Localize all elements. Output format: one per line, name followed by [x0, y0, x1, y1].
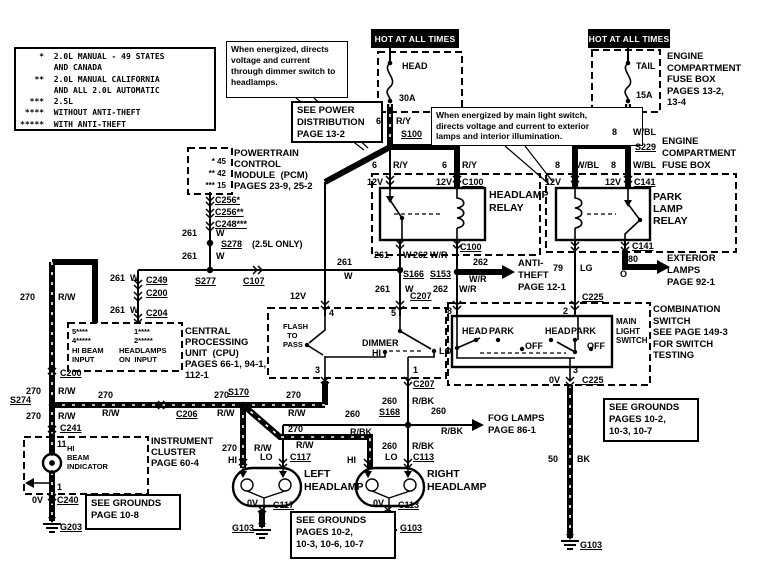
label-tail: TAIL — [636, 62, 655, 71]
label-261: 261 — [110, 274, 125, 283]
label-8: 8 — [612, 128, 617, 137]
wire-270-main-run — [52, 381, 325, 405]
see-grounds-bottom: SEE GROUNDS PAGES 10-2, 10-3, 10-6, 10-7 — [290, 511, 396, 559]
label-261: 261 — [375, 285, 390, 294]
label-off: OFF — [525, 342, 543, 351]
label-w: W — [344, 272, 353, 281]
label-lg: LG — [580, 264, 593, 273]
label-262: 262 — [413, 251, 428, 260]
label-r-bk: R/BK — [412, 397, 434, 406]
instrument-cluster-label: INSTRUMENT CLUSTER PAGE 60-4 — [151, 436, 213, 469]
label-w-bl: W/BL — [633, 161, 656, 170]
note-dimmer: When energized, directs voltage and curr… — [226, 41, 348, 98]
see-grounds-right: SEE GROUNDS PAGES 10-2, 10-3, 10-7 — [603, 398, 699, 442]
label-261: 261 — [337, 258, 352, 267]
label-260: 260 — [382, 442, 397, 451]
label-261: 261 — [374, 251, 389, 260]
label-260: 260 — [382, 397, 397, 406]
label-s166: S166 — [403, 270, 424, 279]
label-r-bk: R/BK — [412, 442, 434, 451]
label-c100: C100 — [460, 243, 482, 252]
label-260: 260 — [431, 407, 446, 416]
engine-fusebox-top-label: ENGINE COMPARTMENT FUSE BOX PAGES 13-2, … — [667, 51, 741, 109]
label-0v: 0V — [32, 496, 43, 505]
label-g103: G103 — [400, 524, 422, 533]
label-s153: S153 — [430, 270, 451, 279]
flash-to-pass-label: FLASH TO PASS — [283, 322, 308, 349]
label-c206: C206 — [176, 410, 198, 419]
label-s100: S100 — [401, 130, 422, 139]
label-w: W — [130, 274, 139, 283]
label-r-w: R/W — [296, 441, 314, 450]
label-r-w: R/W — [58, 412, 76, 421]
label-w-r: W/R — [469, 275, 487, 284]
label-262: 262 — [473, 258, 488, 267]
label-c141: C141 — [632, 242, 654, 251]
label-c113: C113 — [398, 501, 419, 510]
label-bk: BK — [577, 455, 590, 464]
label-c225: C225 — [582, 293, 604, 302]
label-head: HEAD — [545, 327, 571, 336]
label-270: 270 — [26, 412, 41, 421]
label-head: HEAD — [402, 62, 428, 71]
label-3: 3 — [315, 366, 320, 375]
label-270: 270 — [20, 293, 35, 302]
label-c225: C225 — [582, 376, 604, 385]
label-s168: S168 — [379, 408, 400, 417]
label-c107: C107 — [243, 277, 265, 286]
wiring-diagram: HOT AT ALL TIMESHOT AT ALL TIMES * 2.0L … — [0, 0, 775, 571]
cpu-pin-hibeam-label: HI BEAM INPUT — [72, 346, 104, 364]
label-c207: C207 — [413, 380, 435, 389]
label-6: 6 — [442, 161, 447, 170]
label-50: 50 — [548, 455, 558, 464]
anti-theft-arrow — [502, 265, 515, 279]
label-c117: C117 — [290, 453, 311, 462]
label-270: 270 — [286, 391, 301, 400]
label-12v: 12V — [605, 178, 621, 187]
hot-at-all-times-right: HOT AT ALL TIMES — [588, 29, 670, 48]
label-r-y: R/Y — [462, 161, 477, 170]
label-hi: HI — [372, 349, 381, 358]
label-c207: C207 — [410, 292, 432, 301]
label-park: PARK — [571, 327, 596, 336]
label-r-bk: R/BK — [441, 427, 463, 436]
label-s278: S278 — [221, 240, 242, 249]
label-6: 6 — [372, 161, 377, 170]
label-r-y: R/Y — [396, 117, 411, 126]
label-12v: 12V — [545, 178, 561, 187]
label-c113: C113 — [413, 453, 434, 462]
label-261: 261 — [182, 252, 197, 261]
label-w-r: W/R — [459, 285, 477, 294]
cpu-label: CENTRAL PROCESSING UNIT (CPU) PAGES 66-1… — [185, 326, 266, 381]
park-lamp-relay-label: PARK LAMP RELAY — [653, 191, 688, 227]
fog-lamps-arrow — [472, 419, 484, 431]
head-fuse-element — [387, 63, 392, 100]
label-w-bl: W/BL — [633, 128, 656, 137]
see-grounds-cluster: SEE GROUNDS PAGE 10-8 — [85, 494, 181, 530]
label-lo: LO — [385, 453, 398, 462]
label-lo: LO — [439, 347, 452, 356]
label-c240: C240 — [57, 496, 79, 505]
label-s229: S229 — [635, 143, 656, 152]
label-c241: C241 — [60, 424, 82, 433]
label-g203: G203 — [60, 523, 82, 532]
label-w-bl: W/BL — [576, 161, 599, 170]
combination-switch-label: COMBINATION SWITCH SEE PAGE 149-3 FOR SW… — [653, 304, 728, 362]
label-c141: C141 — [634, 178, 656, 187]
label-2: 2 — [563, 307, 568, 316]
label-5: 5 — [391, 309, 396, 318]
label-1: 1 — [413, 366, 418, 375]
label-s170: S170 — [228, 388, 249, 397]
label-r-w: R/W — [58, 293, 76, 302]
label-r-w: R/W — [102, 409, 120, 418]
label-270: 270 — [98, 391, 113, 400]
label-r-w: R/W — [217, 409, 235, 418]
label-park: PARK — [489, 327, 514, 336]
hi-beam-indicator-label: HI BEAM INDICATOR — [67, 444, 108, 471]
label-8: 8 — [447, 307, 452, 316]
label--2-5l-only-: (2.5L ONLY) — [252, 240, 303, 249]
label-0v: 0V — [549, 376, 560, 385]
label-270: 270 — [288, 425, 303, 434]
label-hi: HI — [347, 456, 356, 465]
label-g103: G103 — [232, 524, 254, 533]
headlamp-relay-label: HEADLAMP RELAY — [489, 189, 549, 215]
label-6: 6 — [376, 117, 381, 126]
label-261: 261 — [110, 306, 125, 315]
label-r-w: R/W — [58, 387, 76, 396]
label-c204: C204 — [146, 309, 168, 318]
label-3: 3 — [573, 366, 578, 375]
label-12v: 12V — [367, 178, 383, 187]
exterior-lamps-ref: EXTERIOR LAMPS PAGE 92-1 — [667, 253, 716, 289]
label-r-y: R/Y — [393, 161, 408, 170]
tail-fuse-element — [625, 63, 630, 100]
label-270: 270 — [214, 391, 229, 400]
label-12v: 12V — [436, 178, 452, 187]
label-dimmer: DIMMER — [362, 339, 399, 348]
label-c256-: C256* — [215, 196, 240, 205]
label-g103: G103 — [580, 541, 602, 550]
cpu-pin-hibeam-nums: 5**** 4***** — [72, 327, 91, 345]
label-w: W — [216, 229, 225, 238]
label-c200: C200 — [146, 289, 168, 298]
label-1: 1 — [57, 483, 62, 492]
label-hi: HI — [228, 456, 237, 465]
fog-lamps-ref: FOG LAMPS PAGE 86-1 — [488, 413, 544, 437]
label-c100: C100 — [462, 178, 484, 187]
right-headlamp-label: RIGHT HEADLAMP — [427, 468, 487, 494]
label-s277: S277 — [195, 277, 216, 286]
label-30a: 30A — [399, 94, 416, 103]
label-79: 79 — [553, 264, 563, 273]
label-w: W — [403, 251, 412, 260]
label-s274: S274 — [10, 396, 31, 405]
legend-box: * 2.0L MANUAL - 49 STATES AND CANADA ** … — [14, 47, 216, 131]
engine-fusebox-mid-label: ENGINE COMPARTMENT FUSE BOX — [662, 136, 736, 172]
label-260: 260 — [345, 410, 360, 419]
label-c256-: C256** — [215, 208, 244, 217]
label-o: O — [620, 270, 627, 279]
pcm-label: POWERTRAIN CONTROL MODULE (PCM) PAGES 23… — [234, 148, 313, 192]
label-c200: C200 — [60, 369, 82, 378]
indicator-arrow — [25, 478, 34, 488]
label-4: 4 — [329, 309, 334, 318]
label-w-r: W/R — [430, 251, 448, 260]
label-15a: 15A — [636, 91, 653, 100]
label-r-w: R/W — [288, 409, 306, 418]
label-80: 80 — [628, 255, 638, 264]
label-c249: C249 — [146, 276, 168, 285]
tail-fuse-box — [592, 50, 660, 112]
main-light-switch-label: MAIN LIGHT SWITCH — [616, 317, 648, 346]
cpu-pin-headlampson-label: HEADLAMPS ON INPUT — [119, 346, 167, 364]
label-w: W — [130, 306, 139, 315]
label-head: HEAD — [462, 327, 488, 336]
label-0v: 0V — [373, 499, 384, 508]
label-8: 8 — [555, 161, 560, 170]
label-12v: 12V — [290, 292, 306, 301]
label-lo: LO — [260, 453, 273, 462]
pcm-pins: * 45 ** 42 *** 15 — [192, 156, 226, 192]
label-0v: 0V — [247, 499, 258, 508]
label-r-bk: R/BK — [350, 428, 372, 437]
left-headlamp-label: LEFT HEADLAMP — [304, 468, 364, 494]
see-power-distribution: SEE POWER DISTRIBUTION PAGE 13-2 — [291, 101, 383, 143]
label-270: 270 — [222, 444, 237, 453]
label-c117: C117 — [273, 501, 294, 510]
label-w: W — [216, 252, 225, 261]
label-261: 261 — [182, 229, 197, 238]
label-8: 8 — [611, 161, 616, 170]
hot-at-all-times-left: HOT AT ALL TIMES — [371, 29, 459, 48]
cpu-pin-headlampson-nums: 1**** 2***** — [134, 327, 153, 345]
label-off: OFF — [587, 342, 605, 351]
label-11: 11 — [57, 440, 67, 449]
label-262: 262 — [433, 285, 448, 294]
